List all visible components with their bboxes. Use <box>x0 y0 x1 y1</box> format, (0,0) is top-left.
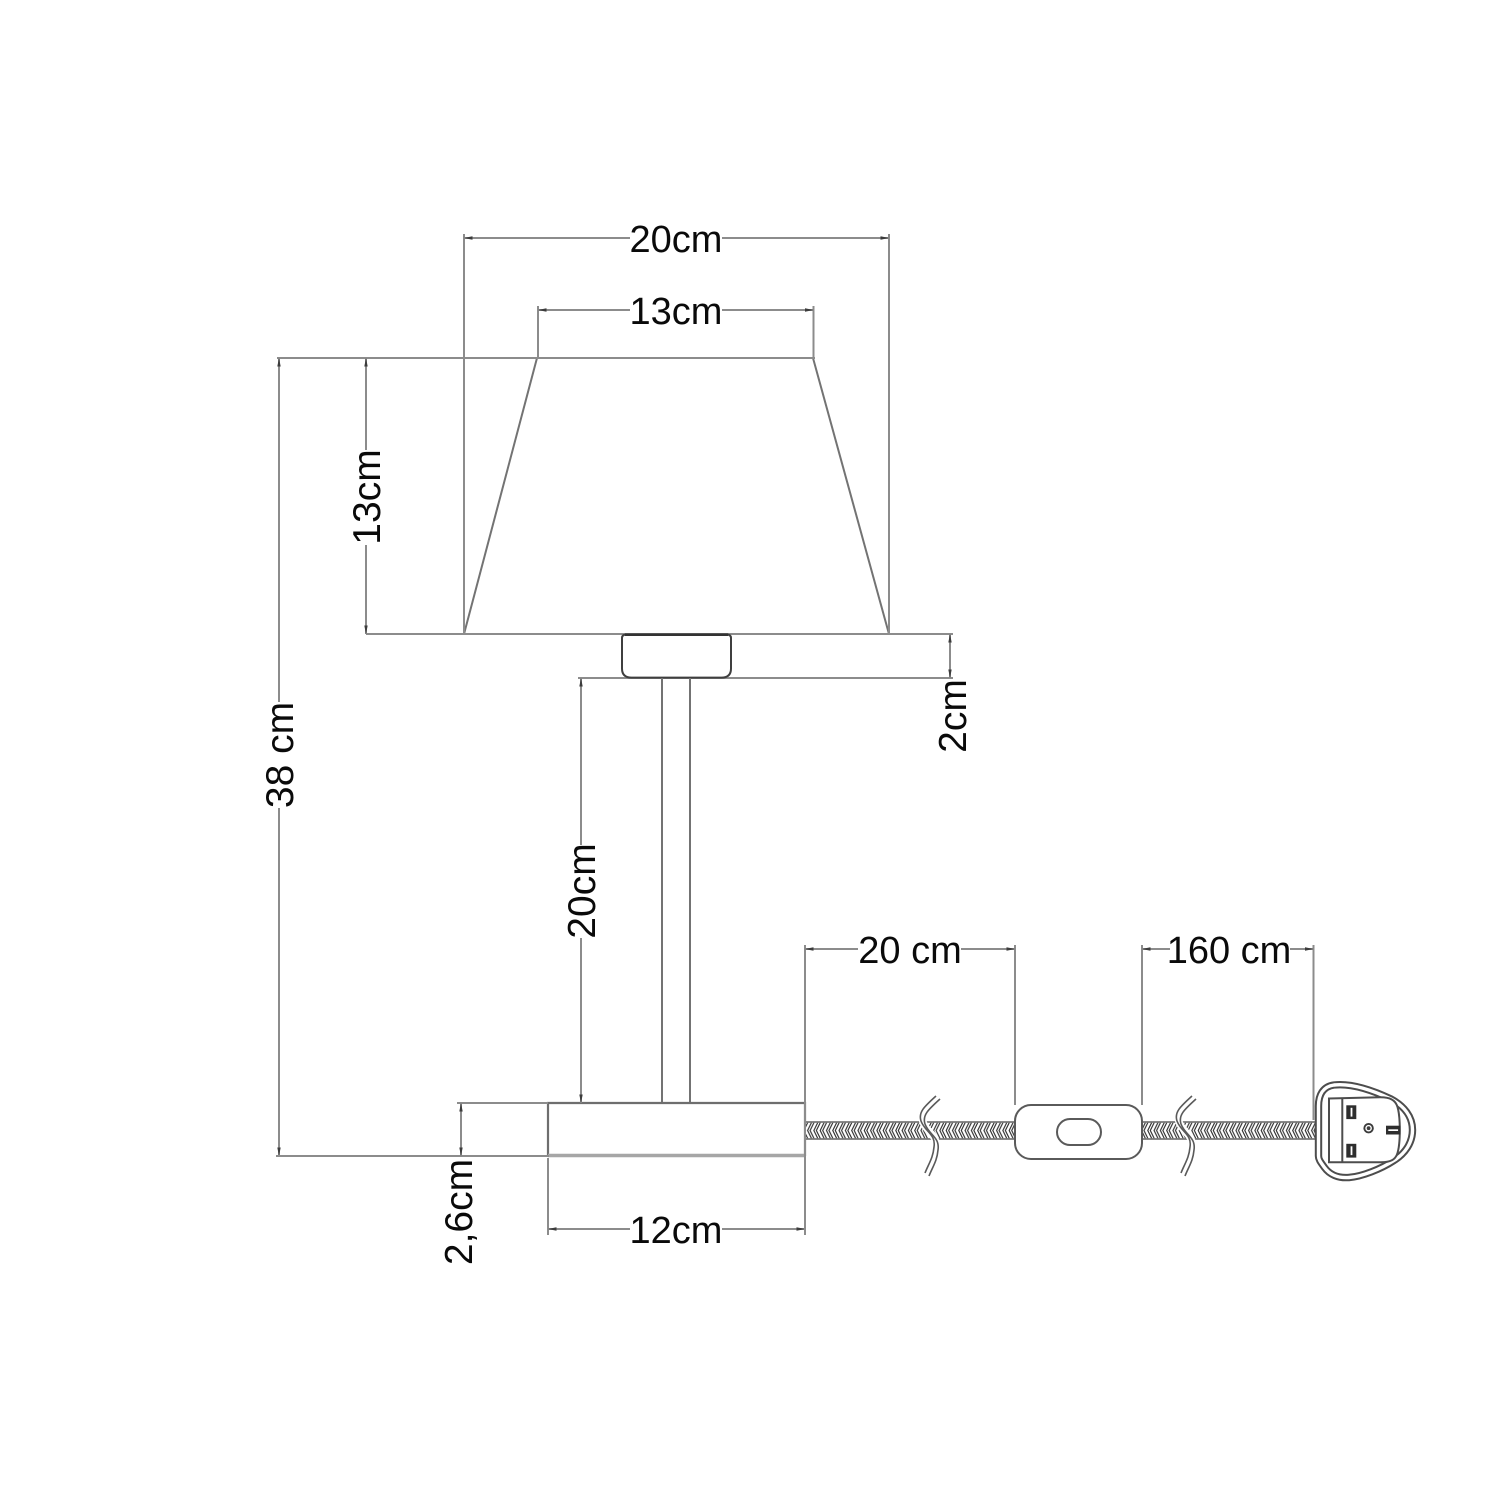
svg-text:38 cm: 38 cm <box>259 702 302 808</box>
svg-text:12cm: 12cm <box>630 1210 723 1252</box>
svg-text:20 cm: 20 cm <box>858 930 961 972</box>
svg-text:13cm: 13cm <box>630 291 723 333</box>
svg-text:2,6cm: 2,6cm <box>438 1159 481 1265</box>
svg-text:20cm: 20cm <box>561 843 604 938</box>
svg-text:2cm: 2cm <box>932 679 975 753</box>
svg-text:13cm: 13cm <box>346 449 389 544</box>
svg-text:20cm: 20cm <box>630 219 723 261</box>
svg-text:160 cm: 160 cm <box>1167 930 1292 972</box>
